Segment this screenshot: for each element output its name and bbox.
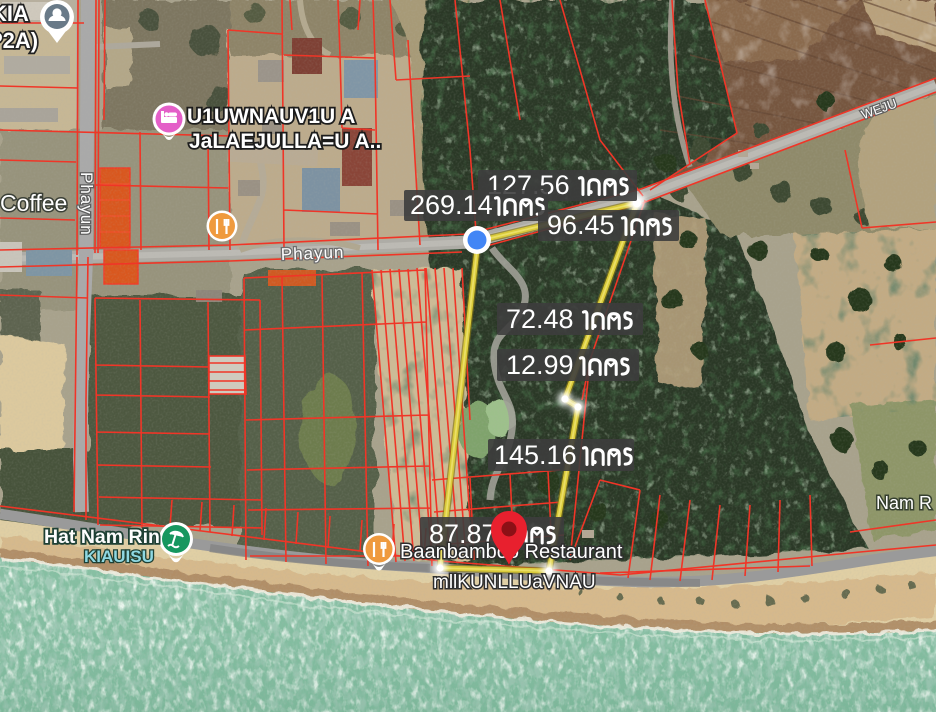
svg-text:mllKUNLLUaVNAU: mllKUNLLUaVNAU [433,572,596,593]
svg-text:U1UWNAUV1U A: U1UWNAUV1U A [187,105,355,128]
svg-text:P2A): P2A) [0,28,38,53]
svg-text:96.45: 96.45 [547,210,615,240]
svg-text:145.16: 145.16 [494,440,577,470]
svg-text:Hat Nam Rin: Hat Nam Rin [44,526,160,548]
svg-text:KIA: KIA [0,1,29,26]
svg-text:Phayun: Phayun [77,172,96,236]
svg-text:12.99: 12.99 [506,350,574,380]
svg-text:Phayun: Phayun [280,243,344,264]
svg-text:72.48: 72.48 [506,304,574,334]
svg-text:Coffee: Coffee [0,190,67,216]
svg-text:Nam R: Nam R [876,493,932,513]
svg-text:KIAUISU: KIAUISU [84,547,154,566]
svg-text:269.14: 269.14 [410,190,493,220]
svg-text:JaLAEJULLA=U A..: JaLAEJULLA=U A.. [189,130,381,153]
